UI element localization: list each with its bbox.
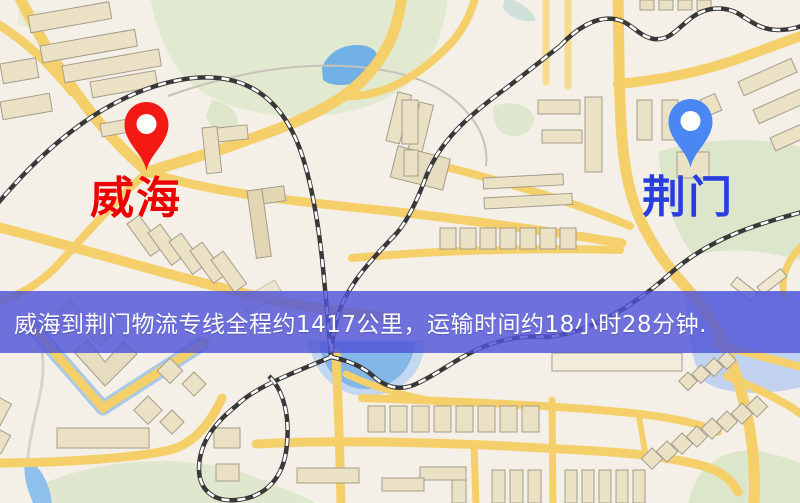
origin-pin-icon[interactable]	[123, 101, 170, 173]
route-info-text: 威海到荆门物流专线全程约1417公里，运输时间约18小时28分钟.	[14, 305, 707, 339]
map-screenshot: 威海 荆门 威海到荆门物流专线全程约1417公里，运输时间约18小时28分钟.	[0, 0, 800, 503]
map-background	[0, 0, 800, 503]
origin-city-label: 威海	[90, 177, 182, 221]
destination-city-label: 荆门	[642, 176, 734, 220]
route-info-banner: 威海到荆门物流专线全程约1417公里，运输时间约18小时28分钟.	[0, 291, 800, 353]
destination-pin-icon[interactable]	[667, 98, 714, 170]
